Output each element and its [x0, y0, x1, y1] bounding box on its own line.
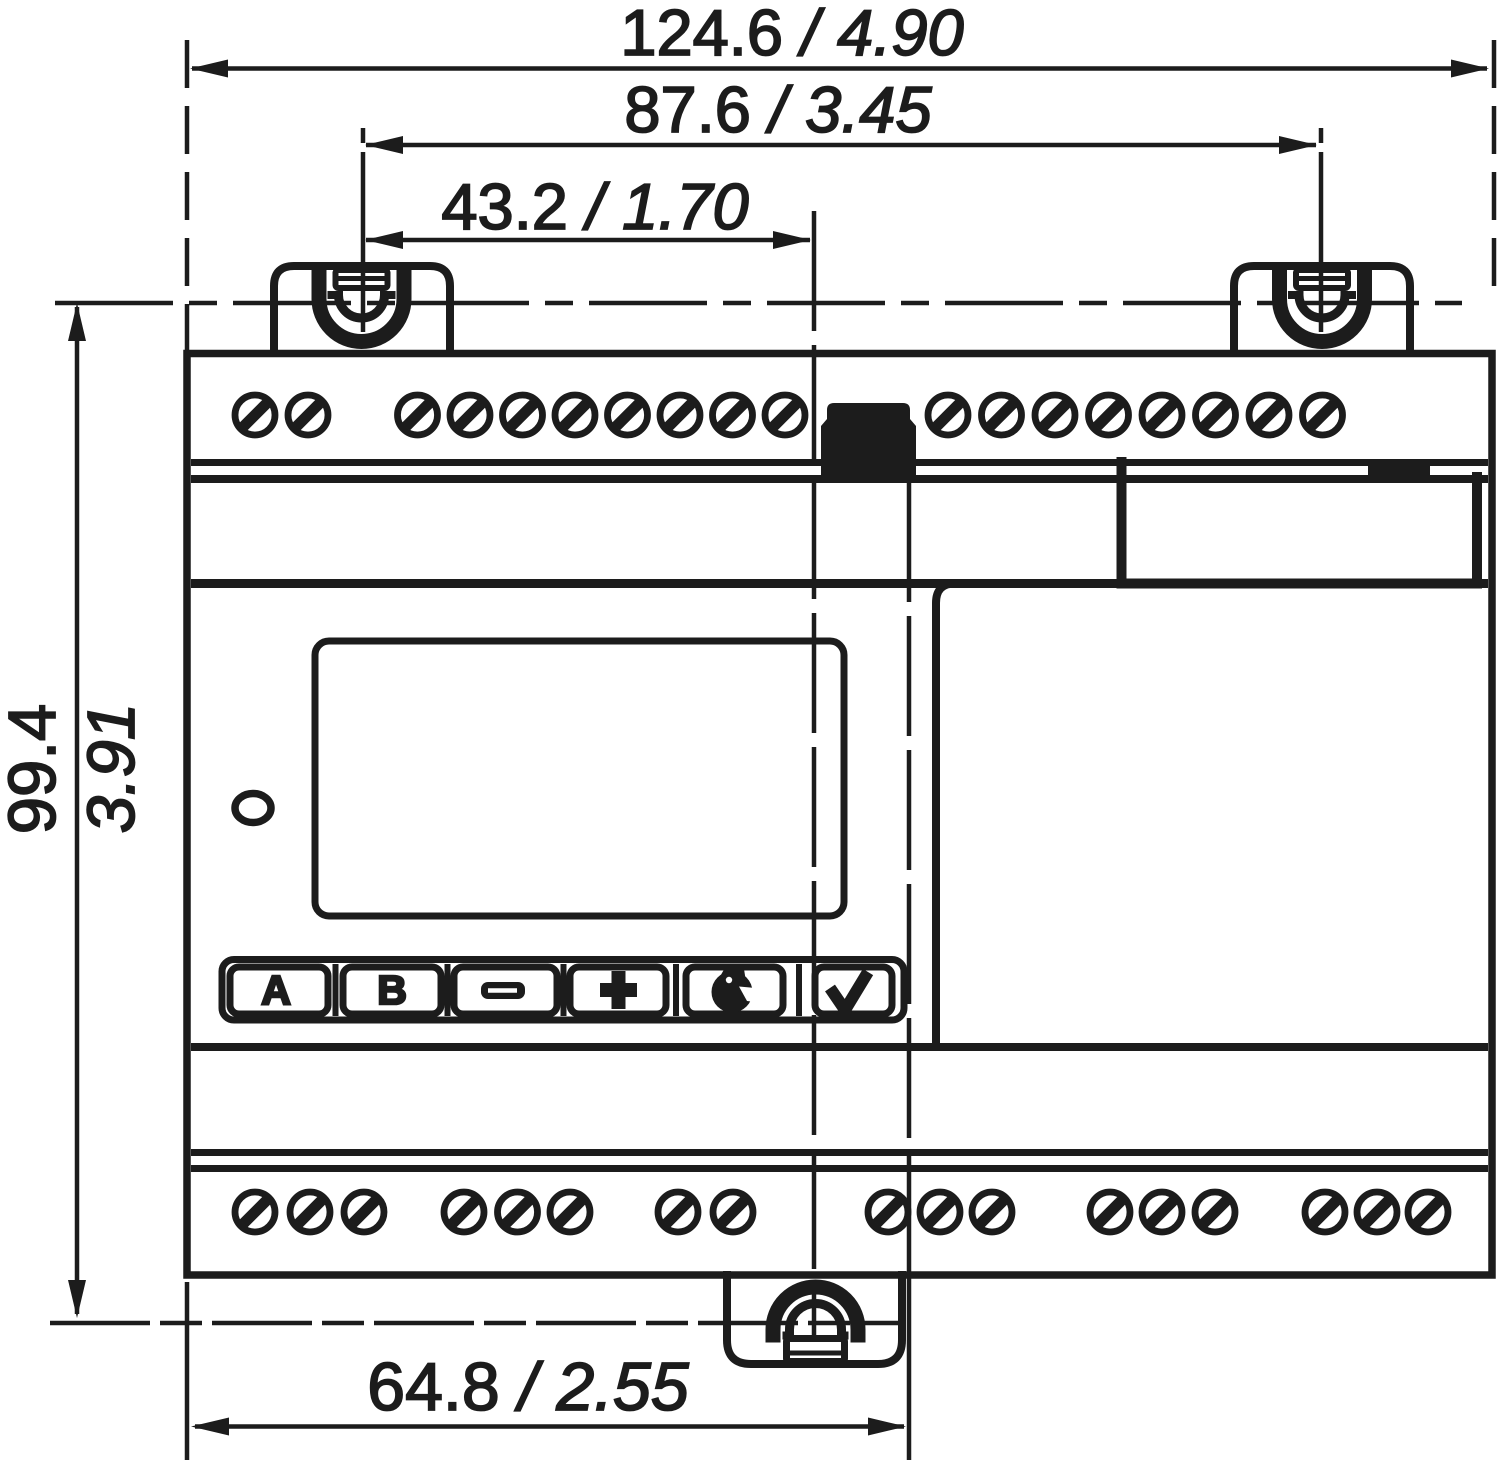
svg-text:64.8 / 2.55: 64.8 / 2.55 — [367, 1349, 689, 1425]
svg-text:124.6 / 4.90: 124.6 / 4.90 — [620, 0, 963, 69]
svg-text:B: B — [377, 967, 407, 1013]
svg-text:87.6 / 3.45: 87.6 / 3.45 — [624, 73, 932, 146]
svg-text:3.91: 3.91 — [74, 703, 149, 833]
svg-text:43.2 / 1.70: 43.2 / 1.70 — [441, 170, 748, 243]
svg-text:99.4: 99.4 — [0, 704, 70, 834]
svg-text:A: A — [261, 967, 291, 1013]
